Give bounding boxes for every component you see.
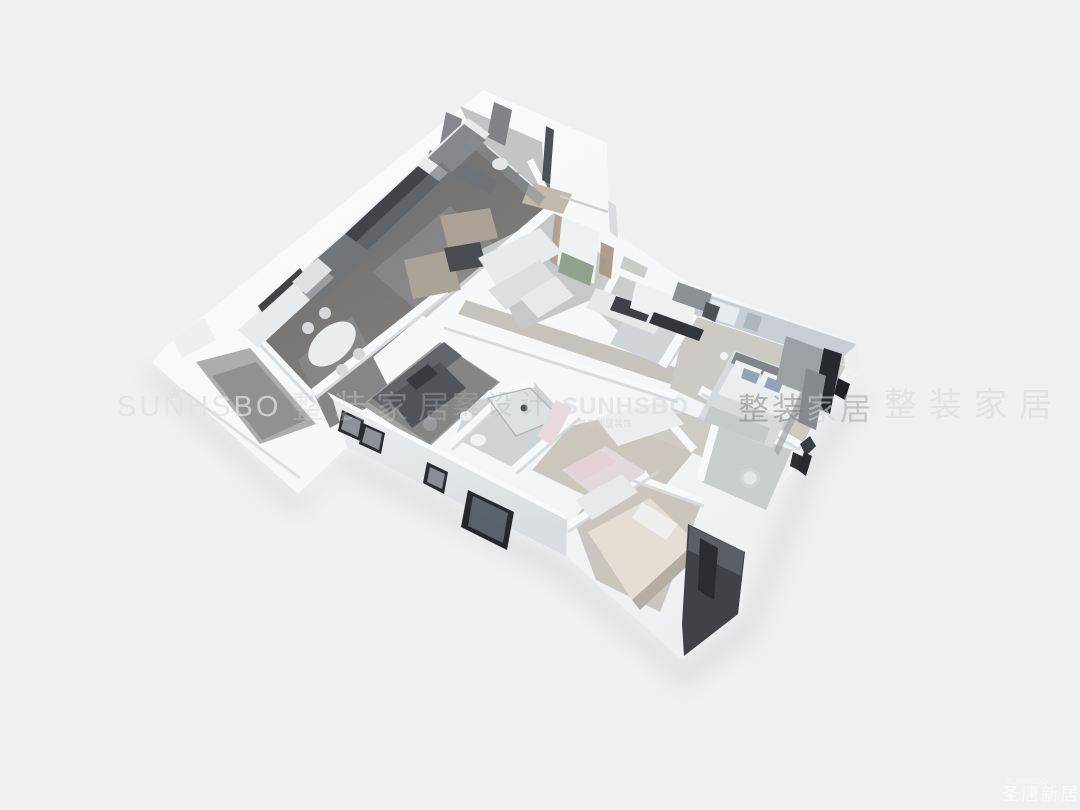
- svg-text:居: 居: [418, 389, 450, 425]
- svg-text:SUNHSBO: SUNHSBO: [562, 393, 689, 420]
- svg-text:装: 装: [772, 392, 803, 427]
- svg-text:圣唐新居: 圣唐新居: [1002, 784, 1080, 804]
- svg-text:居: 居: [840, 392, 871, 427]
- svg-text:整装家居: 整装家居: [884, 386, 1064, 423]
- svg-text:家: 家: [376, 389, 408, 425]
- svg-text:整: 整: [738, 392, 769, 427]
- svg-text:装: 装: [334, 389, 366, 425]
- svg-text:圣唐新居装饰: 圣唐新居装饰: [578, 418, 632, 429]
- svg-text:案设计: 案设计: [452, 390, 554, 420]
- svg-text:SUNHSBO: SUNHSBO: [117, 391, 281, 423]
- svg-text:整: 整: [292, 389, 324, 425]
- svg-text:家: 家: [806, 392, 837, 427]
